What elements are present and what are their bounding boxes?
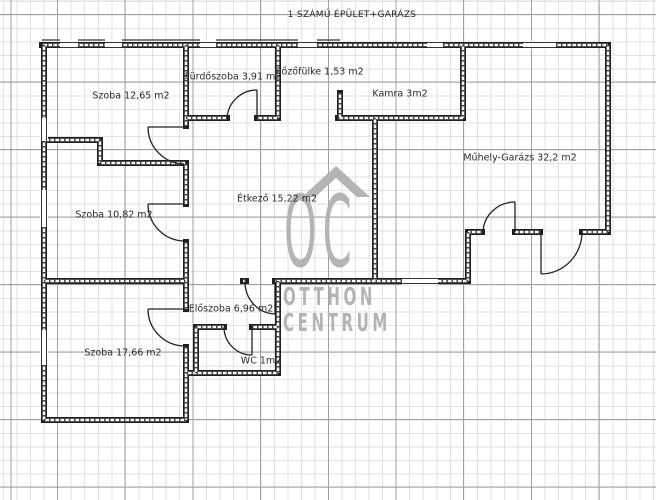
door-szoba-1 — [148, 127, 184, 164]
door-garazs-1 — [483, 202, 515, 232]
floor-plan-canvas: OC OTTHON CENTRUM 1 SZÁMÚ ÉPÜLET+GARÁZS … — [0, 0, 656, 500]
room-label-wc: WC 1m2 — [241, 356, 281, 367]
room-label-muhely-garazs: Műhely-Garázs 32,2 m2 — [463, 153, 576, 164]
room-label-eloszoba: Előszoba 6,96 m2 — [189, 304, 274, 315]
watermark-monogram: OC — [284, 194, 358, 271]
door-furdoszoba — [227, 90, 257, 118]
plan-title: 1 SZÁMÚ ÉPÜLET+GARÁZS — [288, 10, 417, 20]
room-label-kamra: Kamra 3m2 — [372, 89, 427, 100]
watermark-otthon: OTTHON — [283, 284, 376, 309]
room-label-furdoszoba: Fürdőszoba 3,91 m2 — [185, 72, 282, 83]
watermark-centrum: CENTRUM — [283, 310, 391, 335]
room-label-etkezo: Étkező 15,22 m2 — [237, 194, 317, 205]
room-label-fozofulke: Főzőfülke 1,53 m2 — [276, 67, 363, 78]
door-szoba-2 — [148, 204, 184, 241]
room-label-szoba-2: Szoba 10,82 m2 — [75, 210, 152, 221]
room-label-szoba-1: Szoba 12,65 m2 — [92, 91, 169, 102]
door-garazs-2 — [541, 232, 582, 274]
door-szoba-3 — [148, 309, 184, 346]
door-wc — [224, 327, 252, 355]
room-label-szoba-3: Szoba 17,66 m2 — [84, 348, 161, 359]
